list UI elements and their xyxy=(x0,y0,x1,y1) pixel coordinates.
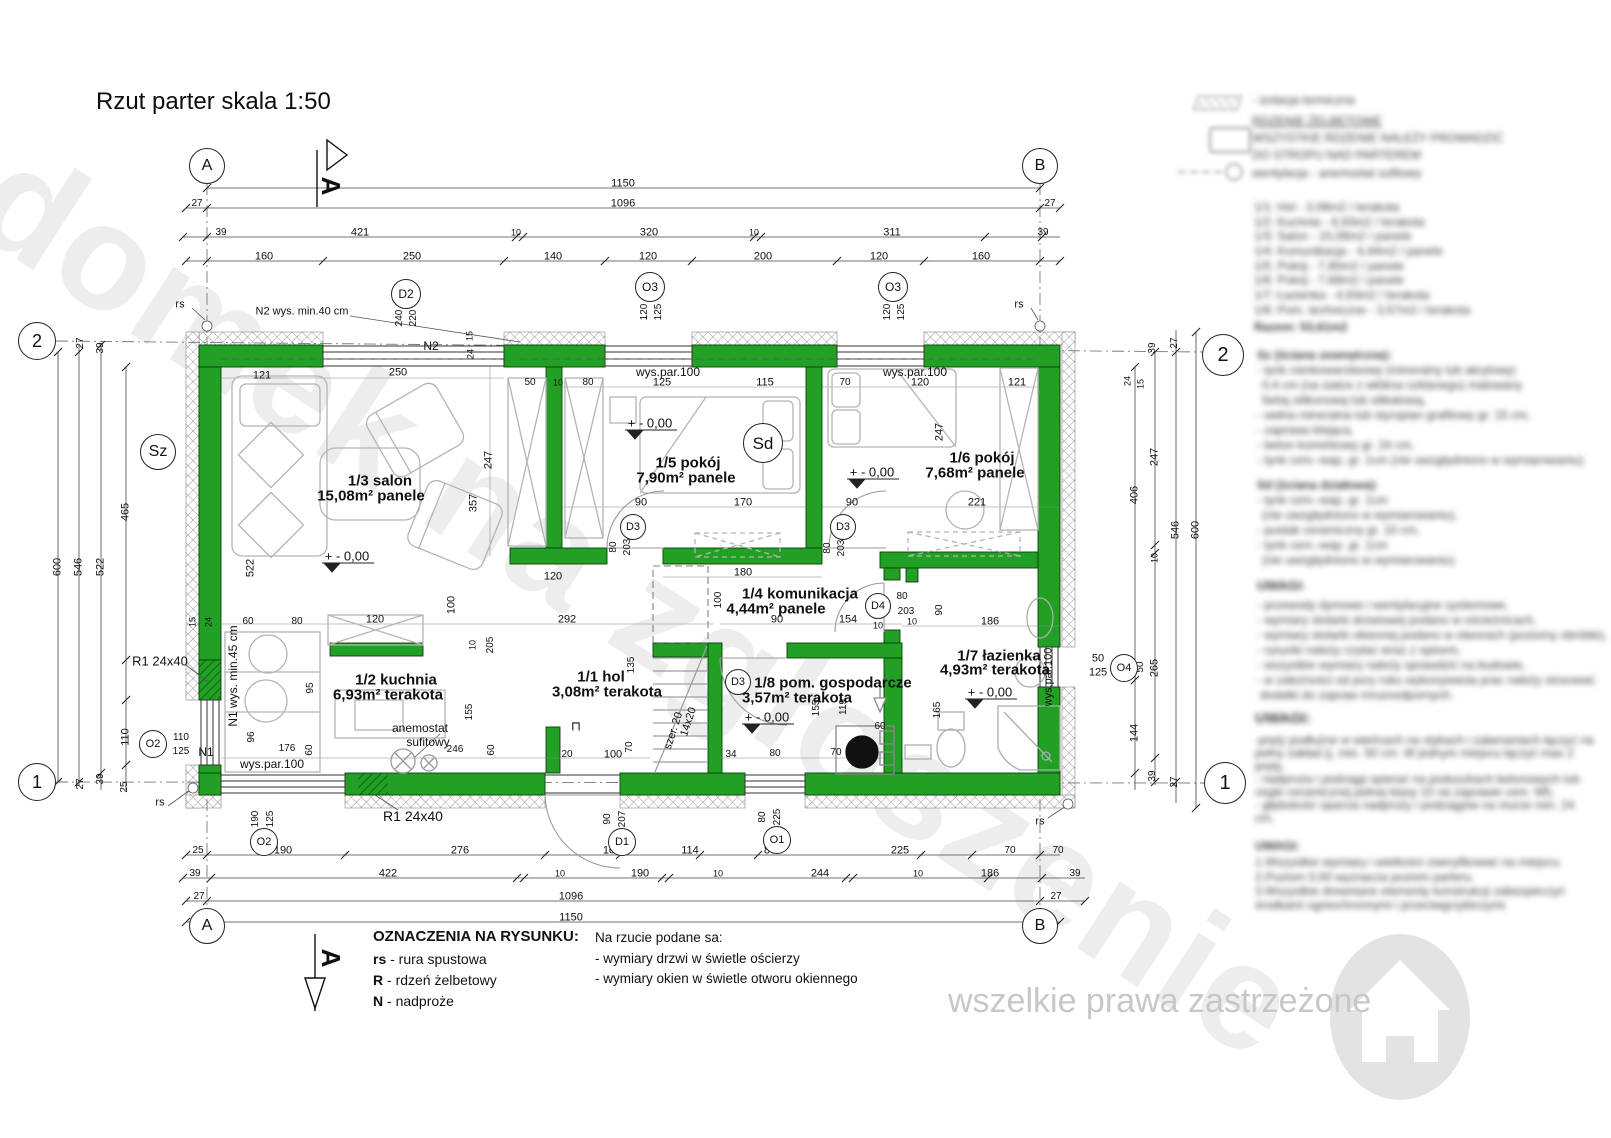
dim-label: 190 xyxy=(631,869,649,880)
dim-label: 27 xyxy=(1170,776,1180,787)
dim-label: 36 xyxy=(847,747,856,757)
blurred-spec-line: cm. xyxy=(1255,812,1274,825)
dim-label: 154 xyxy=(839,615,857,626)
dim-label: 160 xyxy=(972,252,990,263)
dim-label: + - 0,00 xyxy=(628,417,672,430)
blurred-spec-line: DO STROPU NAD PARTEREM xyxy=(1252,149,1421,162)
dim-label: 10 xyxy=(713,870,723,879)
marker-circle-O2: O2 xyxy=(250,828,278,856)
dim-label: wys.par.100 xyxy=(240,758,304,770)
blurred-spec-line: 1/8: Pom. techniczne - 3,57m2 / terakota xyxy=(1254,304,1470,317)
marker-circle-Sz: Sz xyxy=(140,434,176,470)
marker-circle-A: A xyxy=(189,148,225,184)
dim-label: 125 xyxy=(653,378,671,389)
dim-label: 176 xyxy=(279,744,296,754)
blurred-spec-line: - w zależności od pory roku wykonywania … xyxy=(1257,674,1595,687)
blurred-spec-line: 2.Poziom 0,00 wyznacza poziom parteru. xyxy=(1255,871,1474,884)
dim-label: wys.par.100 xyxy=(1044,648,1055,707)
dim-label: 3,57m² terakota xyxy=(742,691,852,706)
blurred-spec-line: RDZENIE ŻELBETOWE xyxy=(1252,115,1382,128)
dim-label: 6,93m² terakota xyxy=(333,688,443,703)
panel-symbols xyxy=(1178,96,1250,180)
dim-label: 25 xyxy=(192,846,203,856)
dim-label: 1096 xyxy=(559,892,583,903)
toilet xyxy=(937,729,965,767)
blurred-spec-line: 1/3: Salon - 15,08m2 / panele xyxy=(1254,230,1411,243)
dim-label: 600 xyxy=(53,558,64,576)
blurred-spec-line: wentylacja - anemostat sufitowy xyxy=(1252,167,1421,180)
dim-label: 250 xyxy=(389,368,407,379)
dim-label: 276 xyxy=(451,846,469,857)
blurred-spec-line: farbą silikonową lub silikatową, xyxy=(1262,394,1426,407)
dim-label: 1/4 komunikacja xyxy=(742,587,858,602)
dim-label: 7,68m² panele xyxy=(925,466,1024,481)
legend-block: OZNACZENIA NA RYSUNKU: rs - rura spustow… xyxy=(373,928,579,1014)
blurred-spec-line: 1/4: Komunikacja - 4,44m2 / panele xyxy=(1254,245,1443,258)
dim-label: 24 xyxy=(205,617,214,627)
dim-label: 96 xyxy=(247,731,257,742)
blurred-spec-line: 3.Wszystkie drewniane elementy konstrukc… xyxy=(1255,885,1565,898)
marker-circle-B: B xyxy=(1022,908,1058,944)
marker-circle-2: 2 xyxy=(1202,334,1244,376)
dim-label: 24 xyxy=(467,349,476,359)
dim-label: 1/8 pom. gospodarcze xyxy=(754,676,912,691)
dim-label: rs xyxy=(155,798,164,809)
blurred-spec-line: - wymiary stolarki drzwiowej podano w oś… xyxy=(1257,614,1536,627)
dim-label: 70 xyxy=(1052,846,1063,856)
copyright-text: wszelkie prawa zastrzeżone xyxy=(948,982,1371,1021)
dim-label: N2 wys. min.40 cm xyxy=(256,307,349,318)
dim-label: 80 xyxy=(758,811,768,822)
dim-label: 60 xyxy=(305,744,315,755)
marker-circle-O3: O3 xyxy=(635,272,665,302)
dim-label: 115 xyxy=(756,378,774,389)
dim-label: 225 xyxy=(891,846,909,857)
armchair xyxy=(363,380,467,481)
dim-label: 114 xyxy=(681,846,699,857)
marker-circle-D3: D3 xyxy=(620,514,646,540)
dim-label: N2 xyxy=(423,340,438,352)
dim-label: 10 xyxy=(511,229,521,238)
dim-label: 421 xyxy=(351,228,369,239)
dim-label: 203 xyxy=(837,540,847,557)
dim-label: 125 xyxy=(266,811,276,828)
marker-circle-D2: D2 xyxy=(391,279,421,309)
blurred-spec-line: Sz (ściana zewnętrzna): xyxy=(1257,349,1392,362)
blurred-spec-line: 0,4 cm (na siatce z włókna szklanego) ma… xyxy=(1262,379,1522,392)
stairs xyxy=(653,646,708,772)
marker-circle-2: 2 xyxy=(18,322,56,360)
dim-label: R1 24x40 xyxy=(132,655,188,668)
dim-label: 70 xyxy=(1004,846,1015,856)
wardrobe xyxy=(565,378,603,538)
dim-label: 15 xyxy=(1137,379,1146,389)
dim-label: 27 xyxy=(1044,199,1055,209)
dim-label: 80 xyxy=(896,592,907,602)
blurred-spec-line: UWAGI: xyxy=(1255,711,1311,728)
floor-plan-sheet: domek na zgłoszenie xyxy=(0,0,1611,1138)
dim-label: 70 xyxy=(839,378,850,388)
dim-label: 110 xyxy=(121,728,132,746)
dim-label: + - 0,00 xyxy=(850,466,894,479)
dim-label: 7,90m² panele xyxy=(636,471,735,486)
dim-label: 120 xyxy=(639,252,657,263)
dim-label: 39 xyxy=(96,773,106,784)
dim-label: 546 xyxy=(1171,521,1182,539)
dim-label: 34 xyxy=(725,750,736,760)
dim-label: 15,08m² panele xyxy=(317,489,425,504)
marker-circle-O2: O2 xyxy=(139,730,167,758)
dim-label: 422 xyxy=(379,869,397,880)
dim-label: 522 xyxy=(246,559,257,577)
dim-label: 120 xyxy=(883,304,893,321)
dim-label: 27 xyxy=(191,199,202,209)
marker-circle-D3: D3 xyxy=(830,514,856,540)
dim-label: 190 xyxy=(251,811,261,828)
dim-label: 100 xyxy=(714,592,724,609)
legend-title: OZNACZENIA NA RYSUNKU: xyxy=(373,928,579,945)
dim-label: 15 xyxy=(466,331,475,341)
blurred-spec-line: 1/7: Łazienka - 4,93m2 / terakota xyxy=(1254,289,1429,302)
dim-label: 10 xyxy=(749,229,759,238)
dim-label: 207 xyxy=(618,811,628,828)
blurred-spec-line: 1.Wszystkie wymiary i wielkości zweryfik… xyxy=(1255,856,1562,869)
marker-circle-O3: O3 xyxy=(878,272,908,302)
blurred-spec-line: pełny zakład (j. min. 50 cm. W jednym mi… xyxy=(1255,747,1574,760)
blurred-spec-line: - beton komórkowy gr. 24 cm, xyxy=(1257,439,1414,452)
dim-label: 247 xyxy=(1150,448,1161,466)
dim-label: 121 xyxy=(1008,378,1026,389)
dim-label: 10 xyxy=(873,622,883,631)
blurred-spec-line: - wełna mineralna lub styropian grafitow… xyxy=(1257,409,1530,422)
dim-label: 311 xyxy=(883,228,901,239)
dim-label: 80 xyxy=(291,617,302,627)
dim-label: 1/1 hol xyxy=(577,670,625,685)
dim-label: 1/3 salon xyxy=(348,474,412,489)
dim-label: 170 xyxy=(734,498,752,509)
dim-label: 90 xyxy=(771,615,783,626)
dim-label: + - 0,00 xyxy=(745,711,789,724)
marker-circle-1: 1 xyxy=(18,763,56,801)
marker-circle-D3: D3 xyxy=(725,669,751,695)
blurred-spec-line: (nie uwzględniono w wymiarowaniu), xyxy=(1262,509,1457,522)
dim-label: 1/5 pokój xyxy=(655,456,720,471)
dim-label: 1150 xyxy=(559,913,583,924)
dim-label: 39 xyxy=(189,869,200,879)
walls xyxy=(199,345,1060,795)
blurred-spec-line: 1/5: Pokój - 7,90m2 / panele xyxy=(1254,260,1404,273)
dim-label: 110 xyxy=(173,733,189,743)
blurred-spec-line: - tynk cem.-wap. gr. 1cm xyxy=(1257,494,1388,507)
dim-label: 186 xyxy=(981,617,999,628)
blurred-spec-line: UWAGI: xyxy=(1257,579,1305,593)
marker-circle-B: B xyxy=(1022,148,1058,184)
dim-label: 247 xyxy=(935,423,946,441)
dim-label: 120 xyxy=(870,252,888,263)
notes-item: - wymiary okien w świetle otworu okienne… xyxy=(595,971,858,986)
marker-circle-O4: O4 xyxy=(1110,654,1138,682)
blurred-spec-line: 1/1: Hol - 3,08m2 / terakota xyxy=(1254,201,1399,214)
dim-label: 120 xyxy=(911,378,929,389)
sofa xyxy=(232,376,327,556)
blurred-spec-line: 1/2: Kuchnia - 6,93m2 / terakota xyxy=(1254,216,1425,229)
marker-circle-O1: O1 xyxy=(763,826,791,854)
dim-label: + - 0,00 xyxy=(968,686,1012,699)
dim-label: rs xyxy=(1035,817,1044,828)
marker-circle-1: 1 xyxy=(1204,762,1246,804)
dim-label: 205 xyxy=(486,637,496,654)
dim-label: 120 xyxy=(544,572,562,583)
dim-label: 10 xyxy=(469,640,478,650)
dim-label: 10 xyxy=(907,618,917,627)
dim-label: 240 xyxy=(395,310,405,327)
dim-label: 247 xyxy=(484,451,495,469)
dim-label: 320 xyxy=(640,228,658,239)
dim-label: 39 xyxy=(96,342,106,353)
dim-label: 90 xyxy=(635,498,647,509)
dim-label: 24 xyxy=(1124,376,1133,386)
dim-label: 265 xyxy=(1150,659,1161,677)
dim-label: 70 xyxy=(625,741,635,752)
dim-label: 27 xyxy=(76,778,86,789)
dim-label: 125 xyxy=(654,304,664,321)
dim-label: 80 xyxy=(823,542,833,553)
dim-label: 15 xyxy=(189,617,198,627)
dim-label: 60 xyxy=(874,722,885,732)
dim-label: 203 xyxy=(623,539,633,556)
dim-label: 120 xyxy=(640,304,650,321)
dim-label: 155 xyxy=(812,700,822,717)
dim-label: 60 xyxy=(487,744,497,755)
marker-circle-A: A xyxy=(189,908,225,944)
notes-title: Na rzucie podane sa: xyxy=(595,930,858,945)
dim-label: sufitowy xyxy=(406,736,449,748)
dim-label: N1 wys. min.45 cm xyxy=(227,625,239,726)
dim-label: 39 xyxy=(1148,342,1158,353)
dim-label: 155 xyxy=(465,704,475,721)
dim-label: 200 xyxy=(754,252,772,263)
section-arrow-bottom xyxy=(305,934,325,1011)
blurred-spec-line: - tynk cienkowarstwowy (mineralny lub ak… xyxy=(1257,364,1516,377)
dim-label: A xyxy=(318,177,344,196)
dim-label: 221 xyxy=(968,498,986,509)
page-title: Rzut parter skala 1:50 xyxy=(96,88,331,116)
marker-circle-D4: D4 xyxy=(865,593,891,619)
dim-label: 20 xyxy=(561,750,572,760)
marker-circle-D1: D1 xyxy=(608,828,636,856)
marker-circle-Sd: Sd xyxy=(743,423,783,463)
dim-label: 140 xyxy=(544,252,562,263)
dim-label: 600 xyxy=(1191,521,1202,539)
blurred-spec-line: - tynk cem.-wap. gr. 1cm (nie uwzględnio… xyxy=(1257,454,1586,467)
dim-label: 292 xyxy=(558,615,576,626)
dim-label: 60 xyxy=(242,617,253,627)
dim-label: 39 xyxy=(1069,869,1080,879)
blurred-spec-line: - wymiary stolarki okiennej podano w otw… xyxy=(1257,629,1607,642)
dim-label: 119 xyxy=(839,699,849,715)
legend-item: rs - rura spustowa xyxy=(373,951,579,967)
dim-label: 225 xyxy=(773,809,783,826)
blurred-spec-line: - pustak ceramiczny gr. 10 cm, xyxy=(1257,524,1420,537)
dim-label: 80 xyxy=(582,378,593,388)
dim-label: 27 xyxy=(1170,337,1180,348)
dim-label: rs xyxy=(1014,300,1023,311)
dim-label: 27 xyxy=(193,892,204,902)
dim-label: 125 xyxy=(173,747,190,757)
dim-label: 121 xyxy=(253,371,271,382)
legend-item: R - rdzeń żelbetowy xyxy=(373,972,579,988)
blurred-spec-line: Sd (ściana działowa): xyxy=(1257,479,1378,492)
dim-label: 125 xyxy=(897,304,907,321)
notes-item: - wymiary drzwi w świetle ościerzy xyxy=(595,951,858,966)
dim-label: 120 xyxy=(366,615,384,626)
blurred-spec-line: Razem: 53,61m2 xyxy=(1254,321,1347,334)
blurred-spec-line: - izolacja termiczna xyxy=(1252,94,1355,107)
dim-label: A xyxy=(318,949,344,968)
dim-label: 144 xyxy=(1130,724,1141,742)
dim-label: rs xyxy=(175,300,184,311)
dim-label: 10 xyxy=(1151,553,1160,563)
dim-label: 1150 xyxy=(611,179,635,190)
blurred-spec-line: - przewody dymowe i wentylacyjne systemo… xyxy=(1257,599,1508,612)
dim-label: 1/6 pokój xyxy=(949,451,1014,466)
blurred-spec-line: - głębokość oparcia nadproży i podciągów… xyxy=(1255,799,1575,812)
dim-label: anemostat xyxy=(392,722,448,734)
blurred-spec-line: - tynk cem.-wap. gr. 1cm xyxy=(1257,539,1388,552)
dim-label: 186 xyxy=(981,869,999,880)
dim-label: 100 xyxy=(604,750,622,761)
legend-item: N - nadproże xyxy=(373,993,579,1009)
dim-label: ⊓ xyxy=(571,720,581,733)
dim-label: 27 xyxy=(76,337,86,348)
dim-label: 465 xyxy=(121,503,132,521)
dim-label: wys.par.100 xyxy=(883,366,947,378)
dim-label: 10 xyxy=(913,870,923,879)
blurred-spec-line: - wszystkie wymiary należy sprawdzić na … xyxy=(1257,659,1526,672)
blurred-spec-line: środkami ogniochronnymi i przeciwgrzybic… xyxy=(1255,899,1508,912)
dim-label: 10 xyxy=(553,379,563,388)
dim-label: 80 xyxy=(609,541,619,552)
dim-label: 100 xyxy=(447,596,458,614)
blurred-spec-line: (nie uwzględniono w wymiarowaniu). xyxy=(1262,554,1457,567)
dim-label: 95 xyxy=(306,682,316,693)
blurred-spec-line: 1/6: Pokój - 7,68m2 / panele xyxy=(1254,274,1404,287)
dim-label: 165 xyxy=(933,702,943,719)
wardrobe xyxy=(508,378,546,546)
dim-label: 1096 xyxy=(611,199,635,210)
dim-label: 39 xyxy=(1148,770,1158,781)
notes-block: Na rzucie podane sa: - wymiary drzwi w ś… xyxy=(595,930,858,991)
blurred-spec-line: dodatki do zapraw mrozoodpornych. xyxy=(1260,689,1453,702)
blurred-spec-line: UWAGI: xyxy=(1255,840,1300,853)
dim-label: 357 xyxy=(469,494,480,512)
section-arrow-top xyxy=(317,140,347,207)
dim-label: 125 xyxy=(1089,668,1107,679)
dim-label: 135 xyxy=(627,657,637,674)
dim-label: 90 xyxy=(935,604,945,615)
dim-label: N1 xyxy=(198,746,213,758)
anemostat-symbol xyxy=(391,749,437,773)
dim-label: 250 xyxy=(403,252,421,263)
dim-label: 50 xyxy=(1092,654,1104,665)
dim-label: 25 xyxy=(120,781,130,792)
dim-label: 203 xyxy=(898,607,915,617)
dim-label: 406 xyxy=(1130,486,1141,504)
dim-label: 244 xyxy=(811,869,829,880)
dim-label: 90 xyxy=(603,813,613,824)
dim-label: 70 xyxy=(830,748,841,758)
dim-label: 1/2 kuchnia xyxy=(355,673,437,688)
blurred-spec-line: - zaprawa klejąca, xyxy=(1257,424,1354,437)
dim-label: 180 xyxy=(734,568,752,579)
dim-label: 50 xyxy=(524,378,535,388)
dim-label: 90 xyxy=(846,498,858,509)
blurred-spec-line: WSZYSTKIE RDZENIE NALEŻY PROWADZIĆ xyxy=(1252,132,1503,145)
dim-label: 27 xyxy=(1050,892,1061,902)
dim-label: R1 24x40 xyxy=(383,809,443,823)
dim-label: + - 0,00 xyxy=(325,550,369,563)
dim-label: 160 xyxy=(255,252,273,263)
dim-label: 10 xyxy=(555,870,565,879)
dim-label: 80 xyxy=(769,749,780,759)
dim-label: 522 xyxy=(96,558,107,576)
dim-label: 39 xyxy=(1037,228,1048,238)
dim-label: 546 xyxy=(74,558,85,576)
dim-label: 4,93m² terakota xyxy=(940,663,1050,678)
dim-label: 39 xyxy=(215,228,226,238)
blurred-spec-line: - rysunki należy czytać wraz z opisem, xyxy=(1257,644,1461,657)
dim-label: 220 xyxy=(409,310,419,327)
dim-label: 3,08m² terakota xyxy=(552,685,662,700)
